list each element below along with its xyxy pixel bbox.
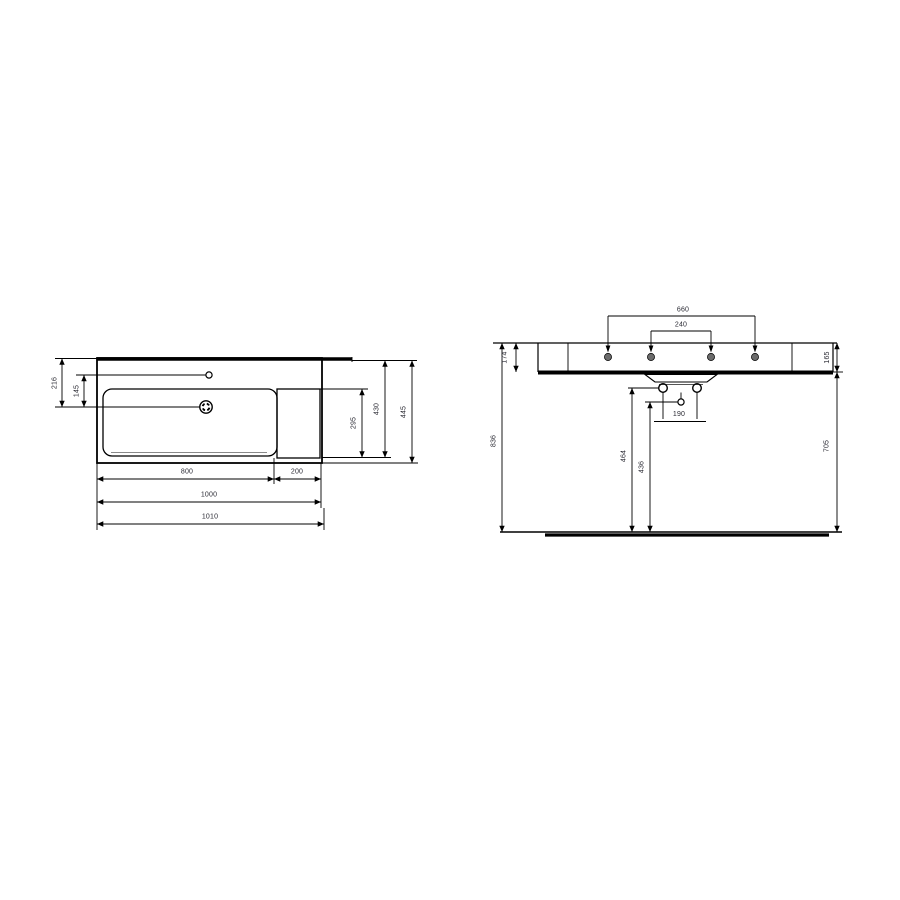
- technical-drawing-sheet: 216 145 295 430 445 800 200 1000 1010: [0, 0, 900, 900]
- dim-bowl-width: 800: [181, 469, 193, 476]
- dim-overall-depth: 445: [401, 406, 408, 418]
- dim-floor-to-rim: 836: [491, 435, 498, 447]
- fixing-hole-right: [693, 384, 702, 393]
- front-drain-boss: [645, 375, 717, 383]
- dim-rim-height-left: 174: [502, 351, 509, 363]
- front-rim-slab: [493, 343, 837, 373]
- drain-waste: [200, 401, 212, 413]
- dim-basin-width: 1000: [201, 492, 217, 499]
- fixing-hole-left: [659, 384, 668, 393]
- dim-group-fixing-hole-span: 190: [654, 411, 706, 422]
- dim-bowl-depth: 295: [351, 417, 358, 429]
- dim-rear-to-drain: 216: [52, 377, 59, 389]
- plan-basin-outline: [97, 357, 417, 463]
- dim-group-tap-hole-span: 660: [606, 307, 758, 353]
- plan-view: 216 145 295 430 445 800 200 1000 1010: [52, 357, 419, 530]
- dim-floor-to-underside: 705: [824, 440, 831, 452]
- drawing-svg: 216 145 295 430 445 800 200 1000 1010: [0, 0, 900, 900]
- dim-rim-height-right: 165: [824, 351, 831, 363]
- plan-bowl: [103, 389, 277, 456]
- dim-group-tap-hole-inner-span: 240: [649, 322, 714, 353]
- dim-outlet-height: 436: [639, 461, 646, 473]
- dim-deck-width: 200: [291, 469, 303, 476]
- front-deck-holes: [604, 353, 758, 360]
- dim-tap-to-drain: 145: [74, 385, 81, 397]
- tap-hole: [206, 372, 212, 378]
- dim-fixing-hole-span: 190: [673, 411, 685, 418]
- floor-line: [500, 532, 842, 535]
- plan-deck-panel: [277, 389, 320, 458]
- dim-fixing-hole-height: 464: [621, 450, 628, 462]
- dim-overall-width: 1010: [202, 514, 218, 521]
- dim-inner-depth: 430: [374, 403, 381, 415]
- dim-tap-hole-span: 660: [677, 307, 689, 314]
- outlet-hole: [678, 399, 684, 405]
- dim-tap-hole-inner-span: 240: [675, 322, 687, 329]
- front-view: 660 240 836 174 165 705 190: [491, 307, 844, 536]
